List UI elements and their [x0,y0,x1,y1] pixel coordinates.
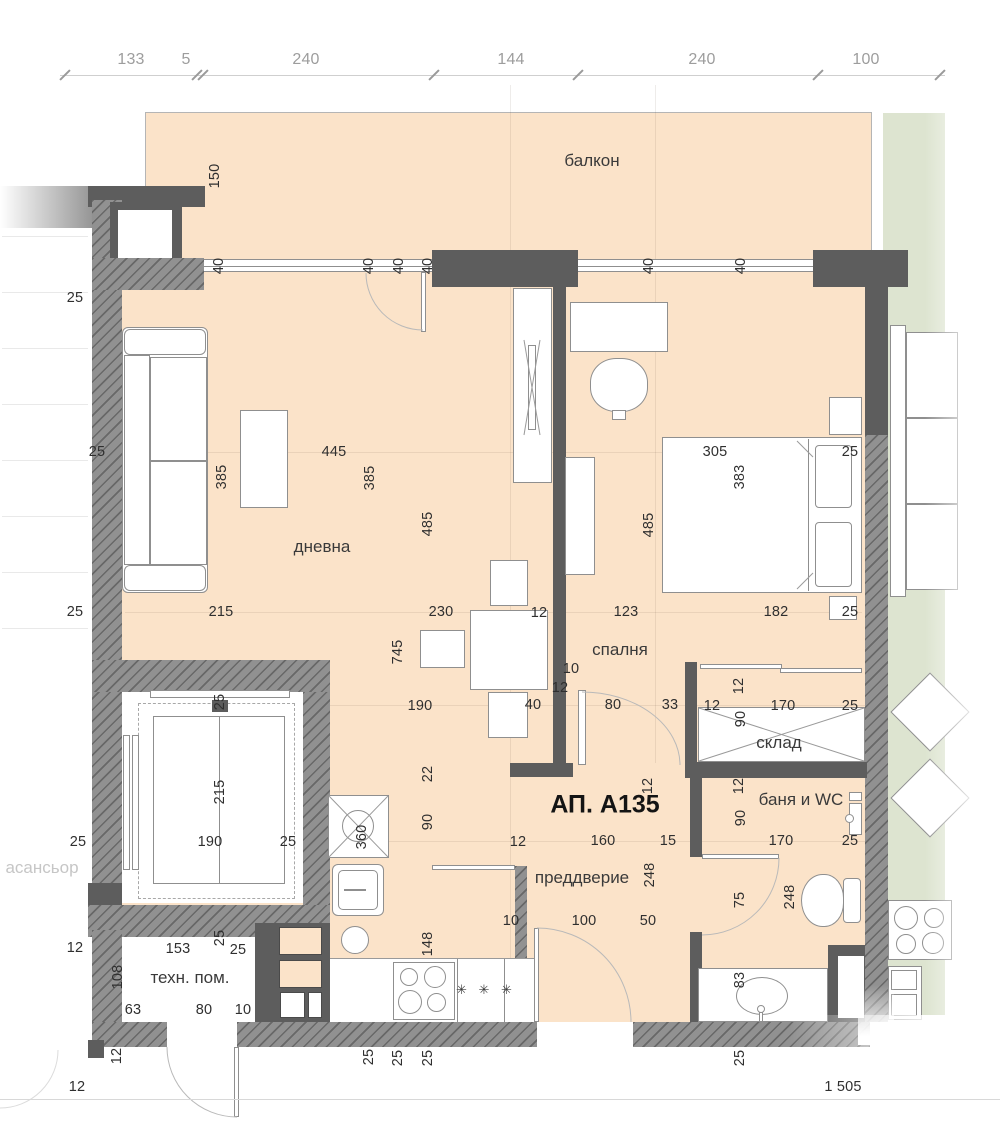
dimension-label: 150 [207,164,223,189]
dimension-label: 75 [732,892,748,909]
dimension-label: 25 [390,1050,406,1067]
dimension-label: 485 [641,513,657,538]
fridge-symbol: ✳ ✳ ✳ [456,982,516,998]
dimension-label: 12 [510,834,527,850]
dimension-label: 385 [362,466,378,491]
dimension-label: 360 [354,825,370,850]
dimension-label: 25 [89,444,106,460]
dimension-label: 90 [733,711,749,728]
dimension-label: 12 [67,940,84,956]
dimension-label: 153 [166,941,191,957]
dimension-label: 240 [688,51,715,69]
dimension-label: 745 [390,640,406,665]
dimension-label: 40 [733,258,749,275]
dimension-label: 215 [209,604,234,620]
dimension-label: 25 [280,834,297,850]
dimension-label: 160 [591,833,616,849]
dimension-label: 100 [572,913,597,929]
dimension-label: 40 [211,258,227,275]
dimension-label: 182 [764,604,789,620]
dimension-label: 50 [640,913,657,929]
dimension-label: 445 [322,444,347,460]
dimension-label: 10 [503,913,520,929]
dimension-label: 10 [235,1002,252,1018]
dimension-label: 40 [641,258,657,275]
dimension-label: 25 [732,1050,748,1067]
dimension-label: 100 [852,51,879,69]
dimension-label: 248 [782,885,798,910]
dimension-label: 25 [230,942,247,958]
dimension-label: 190 [198,834,223,850]
dimension-label: 25 [842,833,859,849]
dimension-label: 63 [125,1002,142,1018]
dimension-label: 25 [67,604,84,620]
dimension-label: 385 [214,465,230,490]
dimension-label: 25 [842,698,859,714]
dimension-label: 83 [732,972,748,989]
dimension-label: 33 [662,697,679,713]
dimension-label: 248 [642,863,658,888]
dimension-label: 108 [110,965,126,990]
dimension-label: 215 [212,780,228,805]
dimension-label: 25 [212,694,228,711]
dimension-label: 12 [69,1079,86,1095]
dimension-label: 1 505 [824,1079,861,1095]
floor-plan: балкондневнаспалняскладбаня и WCпреддвер… [0,0,1000,1136]
dimension-label: 12 [531,605,548,621]
dimension-label: 485 [420,512,436,537]
dimension-label: 25 [842,444,859,460]
dimension-label: 25 [67,290,84,306]
dimension-label: 133 [117,51,144,69]
dimension-label: 80 [196,1002,213,1018]
dimension-label: 12 [704,698,721,714]
dimension-label: 22 [420,766,436,783]
dimension-label: 25 [70,834,87,850]
dimension-label: 25 [361,1049,377,1066]
dimension-label: 190 [408,698,433,714]
dimension-label: 12 [109,1048,125,1065]
dimension-label: 12 [552,680,569,696]
dimension-label: 305 [703,444,728,460]
dimension-label: 40 [361,258,377,275]
dimension-label: 40 [391,258,407,275]
dimension-label: 25 [212,930,228,947]
apartment-number-label: АП. А135 [550,791,659,820]
dimension-label: 123 [614,604,639,620]
dimension-label: 170 [769,833,794,849]
dimension-label: 15 [660,833,677,849]
dimension-label: 148 [420,932,436,957]
dimension-label: 25 [842,604,859,620]
dimension-label: 383 [732,465,748,490]
dimension-label: 12 [731,678,747,695]
dimension-label: 230 [429,604,454,620]
dimension-label: 240 [292,51,319,69]
dimension-label: 80 [605,697,622,713]
dimension-label: 5 [181,51,190,69]
dimension-label: 40 [525,697,542,713]
dimension-label: 170 [771,698,796,714]
dimension-label: 40 [420,258,436,275]
dimension-label: 144 [497,51,524,69]
dimension-label: 12 [731,778,747,795]
dimension-label: 90 [420,814,436,831]
dimension-labels-layer: 1335240144240100150404040404040253854453… [0,0,1000,1136]
dimension-label: 25 [420,1050,436,1067]
dimension-label: 90 [733,810,749,827]
dimension-label: 10 [563,661,580,677]
